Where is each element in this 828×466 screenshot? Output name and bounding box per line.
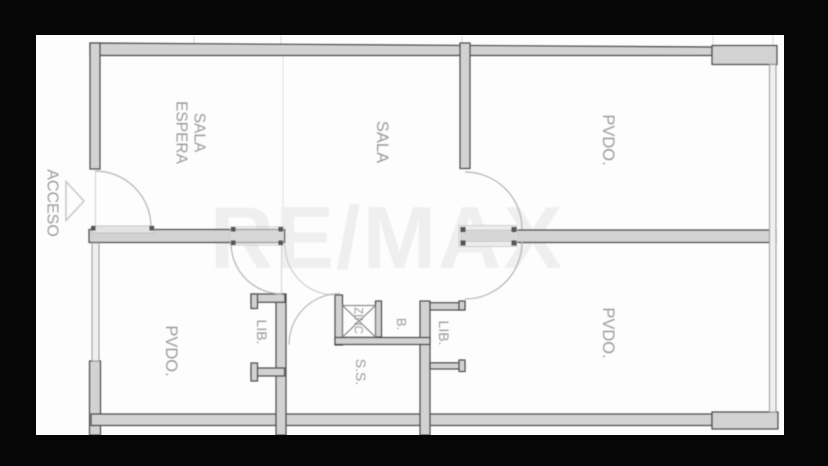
svg-text:PVDO.: PVDO. — [599, 114, 617, 165]
svg-text:LIB.: LIB. — [254, 320, 270, 345]
svg-text:PVDO.: PVDO. — [162, 325, 180, 376]
svg-text:B.: B. — [394, 318, 409, 330]
svg-text:ACCESO: ACCESO — [44, 169, 61, 237]
svg-text:SALA: SALA — [373, 121, 391, 163]
svg-text:SALA: SALA — [191, 113, 208, 153]
svg-text:PVDO.: PVDO. — [599, 307, 617, 358]
svg-text:ESPERA: ESPERA — [173, 101, 190, 165]
svg-text:LIB.: LIB. — [436, 321, 452, 346]
svg-text:ZINC: ZINC — [352, 307, 364, 334]
svg-text:S.S.: S.S. — [353, 359, 369, 385]
